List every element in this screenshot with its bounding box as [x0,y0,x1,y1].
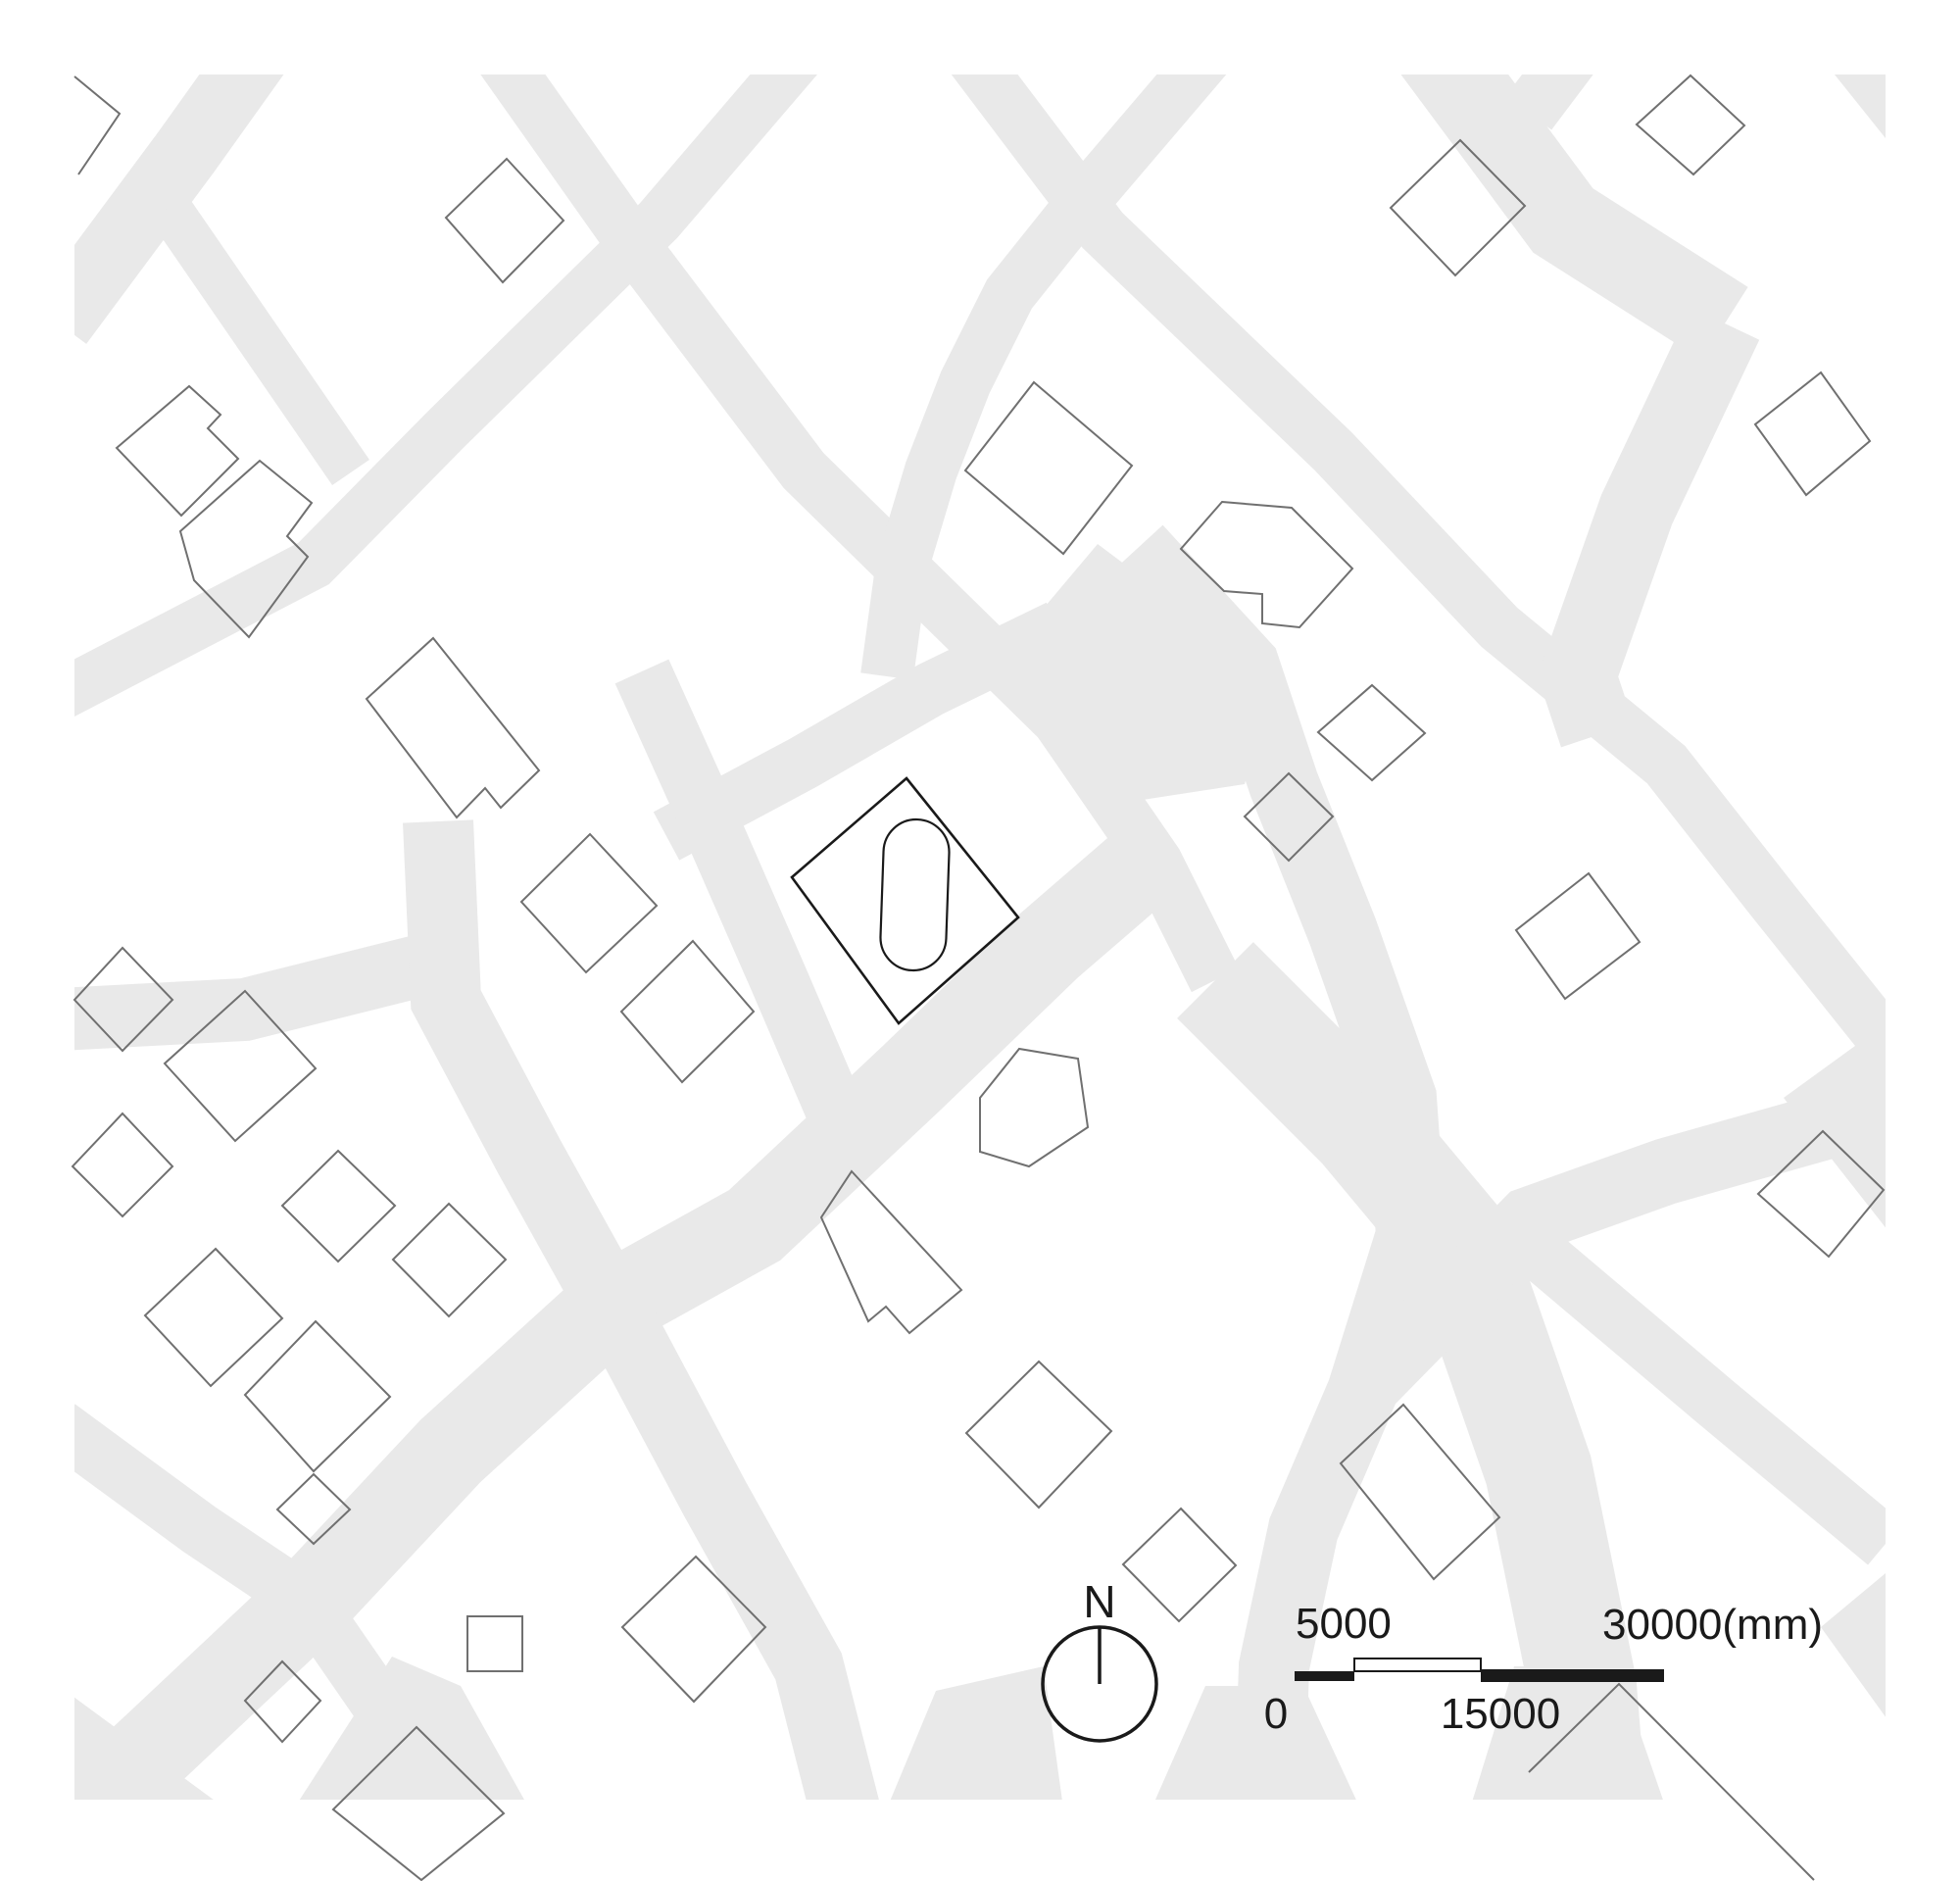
svg-text:0: 0 [1264,1690,1288,1738]
svg-text:N: N [1083,1576,1115,1627]
svg-text:5000: 5000 [1296,1600,1392,1648]
svg-text:30000(mm): 30000(mm) [1602,1601,1823,1649]
svg-text:15000: 15000 [1441,1690,1560,1738]
